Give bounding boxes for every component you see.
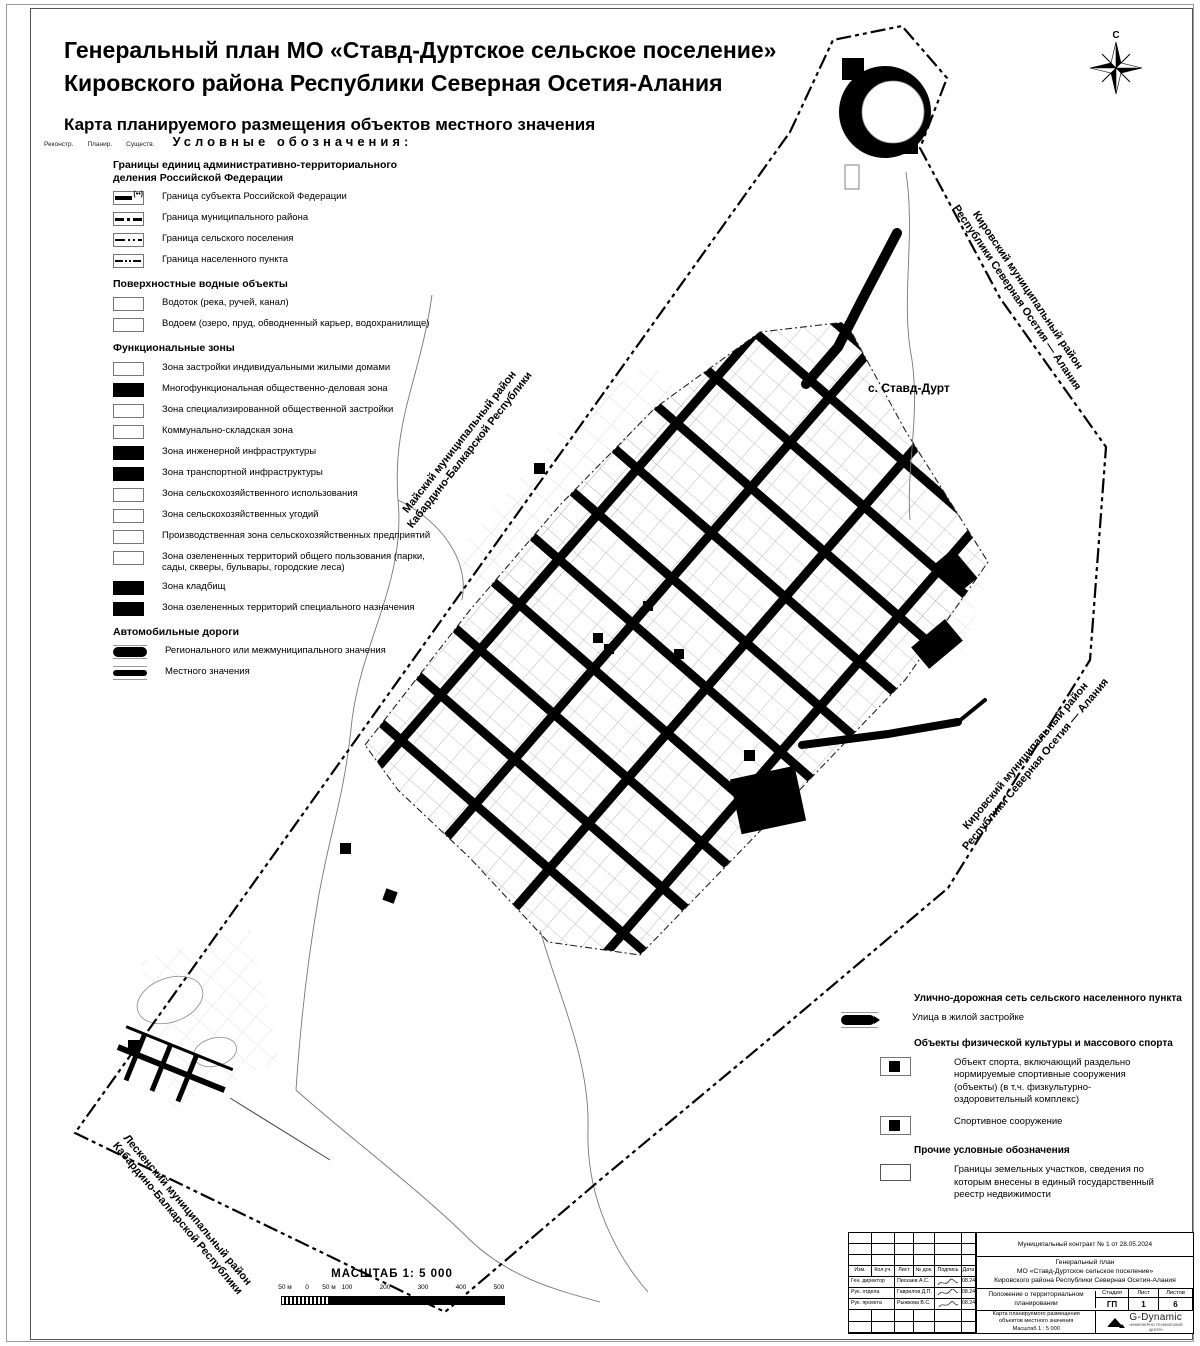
sheet-value: 1 <box>1129 1298 1159 1311</box>
stage-value: ГП <box>1096 1298 1129 1311</box>
sheets-value: 6 <box>1159 1298 1193 1311</box>
company-logo: G-Dynamic «ИНЖЕНЕРНО-ТЕХНИЧЕСКИЙ ЦЕНТР» <box>1096 1312 1193 1332</box>
legend-item: Многофункциональная общественно-деловая … <box>113 383 449 397</box>
scalebar-tick-label: 0 <box>305 1284 309 1291</box>
legend-item-label: Водоток (река, ручей, канал) <box>162 297 289 309</box>
row-name: Гаврилов Д.П. <box>895 1288 935 1299</box>
legend-item: Зона сельскохозяйственных угодий <box>113 509 449 523</box>
logo-sub-line2: ЦЕНТР» <box>1129 1328 1183 1332</box>
legend-item: Зона кладбищ <box>113 581 449 595</box>
other-section-title: Прочие условные обозначения <box>914 1145 1191 1156</box>
legend-item: Граница муниципального района <box>113 212 449 226</box>
legend-item-label: Зона кладбищ <box>162 581 225 593</box>
scalebar-tick-label: 200 <box>380 1284 391 1291</box>
legend-heading: Условные обозначения: <box>173 134 413 149</box>
legend-item-label: Многофункциональная общественно-деловая … <box>162 383 388 395</box>
signature-icon <box>935 1288 962 1299</box>
row-date: 08.24 <box>962 1288 976 1299</box>
status-label-reconstr: Реконстр. <box>44 141 73 148</box>
legend-swatch-icon <box>113 191 144 205</box>
stage-table: Стадия Лист Листов ГП 1 6 <box>1096 1289 1193 1311</box>
map-caption: Карта планируемого размещения объектов м… <box>977 1311 1096 1333</box>
legend-item-label: Зона застройки индивидуальными жилыми до… <box>162 362 390 374</box>
title-block-signatures: Изм. Кол.уч. Лист № док. Подпись Дата Ге… <box>849 1233 976 1333</box>
legend-item-label: Зона специализированной общественной зас… <box>162 404 393 416</box>
caption-line3: Масштаб 1 : 5 000 <box>1013 1326 1060 1333</box>
legend-item-label: Зона сельскохозяйственного использования <box>162 488 358 500</box>
project-line3: Кировского района Республики Северная Ос… <box>994 1277 1176 1286</box>
legend-section-zones-items: Зона застройки индивидуальными жилыми до… <box>44 362 449 617</box>
scalebar-title: МАСШТАБ 1: 5 000 <box>281 1268 503 1280</box>
row-role: Рук. проекта <box>849 1299 895 1310</box>
legend-item: Зона специализированной общественной зас… <box>113 404 449 418</box>
legend-item-label: Зона инженерной инфраструктуры <box>162 446 316 458</box>
legend-swatch-icon <box>113 212 144 226</box>
legend-swatch-icon <box>113 254 144 268</box>
legend-item: Зона сельскохозяйственного использования <box>113 488 449 502</box>
stage-header: Стадия <box>1096 1289 1129 1298</box>
sheets-header: Листов <box>1159 1289 1193 1298</box>
legend-swatch-icon <box>113 383 144 397</box>
legend-swatch-icon <box>113 509 144 523</box>
legend-section-boundaries-title: Границы единиц административно-территори… <box>113 159 449 185</box>
legend-right: Улично-дорожная сеть сельского населенно… <box>841 993 1191 1211</box>
legend-item: Зона застройки индивидуальными жилыми до… <box>113 362 449 376</box>
legend-swatch-icon <box>113 488 144 502</box>
title-block: Изм. Кол.уч. Лист № док. Подпись Дата Ге… <box>848 1232 1194 1334</box>
logo-name: G-Dynamic <box>1129 1312 1183 1323</box>
scalebar: МАСШТАБ 1: 5 000 50 м050 м10020030040050… <box>281 1268 503 1310</box>
legend-section-zones-title: Функциональные зоны <box>113 342 449 355</box>
page-subtitle: Карта планируемого размещения объектов м… <box>64 115 854 135</box>
project-name: Генеральный план МО «Ставд-Дуртское сель… <box>977 1257 1193 1289</box>
legend: Реконстр. Планир. Существ. Условные обоз… <box>44 134 449 687</box>
legend-swatch-icon <box>113 602 144 616</box>
legend-item: Водоток (река, ручей, канал) <box>113 297 449 311</box>
scalebar-tick-label: 400 <box>456 1284 467 1291</box>
project-line1: Генеральный план <box>1055 1259 1114 1268</box>
sport-section-title: Объекты физической культуры и массового … <box>914 1038 1191 1049</box>
compass-star-icon <box>1090 42 1142 94</box>
legend-item: Граница сельского поселения <box>113 233 449 247</box>
legend-item-label: Граница субъекта Российской Федерации <box>162 191 347 203</box>
legend-swatch-icon <box>113 551 144 565</box>
legend-item-label: Граница населенного пункта <box>162 254 288 266</box>
legend-section-roads-title: Автомобильные дороги <box>113 626 449 639</box>
col-izm: Изм. <box>849 1266 872 1277</box>
legend-item: Зона транспортной инфраструктуры <box>113 467 449 481</box>
sport-symbol-icon <box>880 1057 911 1076</box>
legend-swatch-icon <box>113 297 144 311</box>
page-title-line1: Генеральный план МО «Ставд-Дуртское сель… <box>64 34 854 67</box>
legend-item-label: Регионального или межмуниципального знач… <box>165 645 386 657</box>
title-block-right: Муниципальный контракт № 1 от 28.05.2024… <box>976 1233 1193 1333</box>
signature-icon <box>935 1277 962 1288</box>
row-role: Рук. отдела <box>849 1288 895 1299</box>
col-dok: № док. <box>914 1266 935 1277</box>
sheet-header: Лист <box>1129 1289 1159 1298</box>
local-track <box>230 1098 330 1160</box>
legend-swatch-icon <box>113 581 144 595</box>
legend-item-label: Местного значения <box>165 666 250 678</box>
legend-item: Коммунально-складская зона <box>113 425 449 439</box>
col-podpis: Подпись <box>935 1266 962 1277</box>
scalebar-tick-label: 50 м <box>322 1284 336 1291</box>
legend-item-label: Объект спорта, включающий раздельно норм… <box>954 1057 1169 1106</box>
row-name: Рыжкова В.С. <box>895 1299 935 1310</box>
legend-item: Зона озелененных территорий специального… <box>113 602 449 616</box>
logo-sub-line1: «ИНЖЕНЕРНО-ТЕХНИЧЕСКИЙ <box>1129 1323 1183 1327</box>
legend-swatch-icon <box>113 318 144 332</box>
project-line2: МО «Ставд-Дуртское сельское поселение» <box>1017 1268 1153 1277</box>
scalebar-tick-label: 100 <box>342 1284 353 1291</box>
legend-item-label: Коммунально-складская зона <box>162 425 293 437</box>
legend-swatch-icon <box>113 666 147 680</box>
scalebar-bar <box>281 1296 505 1305</box>
contract-number: Муниципальный контракт № 1 от 28.05.2024 <box>977 1233 1193 1257</box>
legend-swatch-icon <box>113 446 144 460</box>
page-title-line2: Кировского района Республики Северная Ос… <box>64 67 854 100</box>
legend-item: Водоем (озеро, пруд, обводненный карьер,… <box>113 318 449 332</box>
legend-item: Зона инженерной инфраструктуры <box>113 446 449 460</box>
compass-rose: С <box>1083 26 1149 107</box>
legend-item-label: Зона озелененных территорий общего польз… <box>162 551 432 575</box>
street-symbol-icon <box>841 1012 878 1028</box>
legend-swatch-icon <box>113 404 144 418</box>
legend-section-water-title: Поверхностные водные объекты <box>113 278 449 291</box>
caption-line2: объектов местного значения <box>999 1318 1073 1325</box>
legend-item: Граница населенного пункта <box>113 254 449 268</box>
legend-section-water-items: Водоток (река, ручей, канал) Водоем (озе… <box>44 297 449 332</box>
street-section-title: Улично-дорожная сеть сельского населенно… <box>914 993 1191 1004</box>
document-title: Положение о территориальном планировании <box>977 1291 1096 1307</box>
status-label-sushestv: Существ. <box>126 141 154 148</box>
legend-item: Местного значения <box>113 666 449 680</box>
sport-symbol-icon <box>880 1116 911 1135</box>
legend-item-label: Спортивное сооружение <box>954 1116 1062 1128</box>
legend-item-label: Зона озелененных территорий специального… <box>162 602 415 614</box>
legend-item-label: Водоем (озеро, пруд, обводненный карьер,… <box>162 318 429 330</box>
legend-item-label: Граница сельского поселения <box>162 233 293 245</box>
legend-section-boundaries-items: Граница субъекта Российской Федерации Гр… <box>44 191 449 268</box>
row-role: Ген. директор <box>849 1277 895 1288</box>
scalebar-tick-label: 500 <box>494 1284 505 1291</box>
legend-item: Граница субъекта Российской Федерации <box>113 191 449 205</box>
parcel-symbol-icon <box>880 1164 911 1181</box>
legend-item-label: Зона транспортной инфраструктуры <box>162 467 323 479</box>
signature-icon <box>935 1299 962 1310</box>
legend-item: Производственная зона сельскохозяйственн… <box>113 530 449 544</box>
legend-section-roads-items: Регионального или межмуниципального знач… <box>44 645 449 680</box>
scalebar-tick-label: 50 м <box>278 1284 292 1291</box>
legend-swatch-icon <box>113 645 147 659</box>
col-koluch: Кол.уч. <box>872 1266 895 1277</box>
header: Генеральный план МО «Ставд-Дуртское сель… <box>64 34 854 135</box>
street-legend-label: Улица в жилой застройке <box>912 1012 1024 1024</box>
legend-item: Спортивное сооружение <box>880 1116 1191 1135</box>
row-date: 08.24 <box>962 1299 976 1310</box>
status-label-planir: Планир. <box>87 141 112 148</box>
legend-swatch-icon <box>113 530 144 544</box>
row-date: 08.24 <box>962 1277 976 1288</box>
col-list: Лист <box>895 1266 914 1277</box>
scalebar-tick-label: 300 <box>418 1284 429 1291</box>
legend-item: Зона озелененных территорий общего польз… <box>113 551 449 575</box>
legend-swatch-icon <box>113 425 144 439</box>
parcel-legend-label: Границы земельных участков, сведения по … <box>954 1164 1169 1201</box>
legend-item-label: Зона сельскохозяйственных угодий <box>162 509 319 521</box>
legend-swatch-icon <box>113 467 144 481</box>
parcel-legend-item: Границы земельных участков, сведения по … <box>880 1164 1191 1201</box>
label-kirovsky-ne-line2: Республики Северная Осетия — Алания <box>950 203 1083 392</box>
caption-line1: Карта планируемого размещения <box>993 1311 1080 1318</box>
legend-swatch-icon <box>113 362 144 376</box>
logo-small-mountain-icon <box>1119 1324 1125 1328</box>
sport-legend-items: Объект спорта, включающий раздельно норм… <box>841 1057 1191 1135</box>
street-legend-item: Улица в жилой застройке <box>841 1012 1191 1028</box>
label-leskensky-line2: Кабардино-Балкарской Республики <box>110 1140 244 1297</box>
legend-item: Объект спорта, включающий раздельно норм… <box>880 1057 1191 1106</box>
row-name: Пискаев А.С. <box>895 1277 935 1288</box>
label-kirovsky-ne-line1: Кировский муниципальный район <box>970 209 1085 372</box>
legend-item-label: Производственная зона сельскохозяйственн… <box>162 530 430 542</box>
legend-item: Регионального или межмуниципального знач… <box>113 645 449 659</box>
settlement-name-label: с. Ставд-Дурт <box>868 381 950 395</box>
compass-north-label: С <box>1112 30 1119 41</box>
col-data: Дата <box>962 1266 976 1277</box>
plan-sheet: Кировский муниципальный район Республики… <box>0 0 1200 1346</box>
town-grid <box>365 322 988 955</box>
legend-swatch-icon <box>113 233 144 247</box>
legend-item-label: Граница муниципального района <box>162 212 308 224</box>
